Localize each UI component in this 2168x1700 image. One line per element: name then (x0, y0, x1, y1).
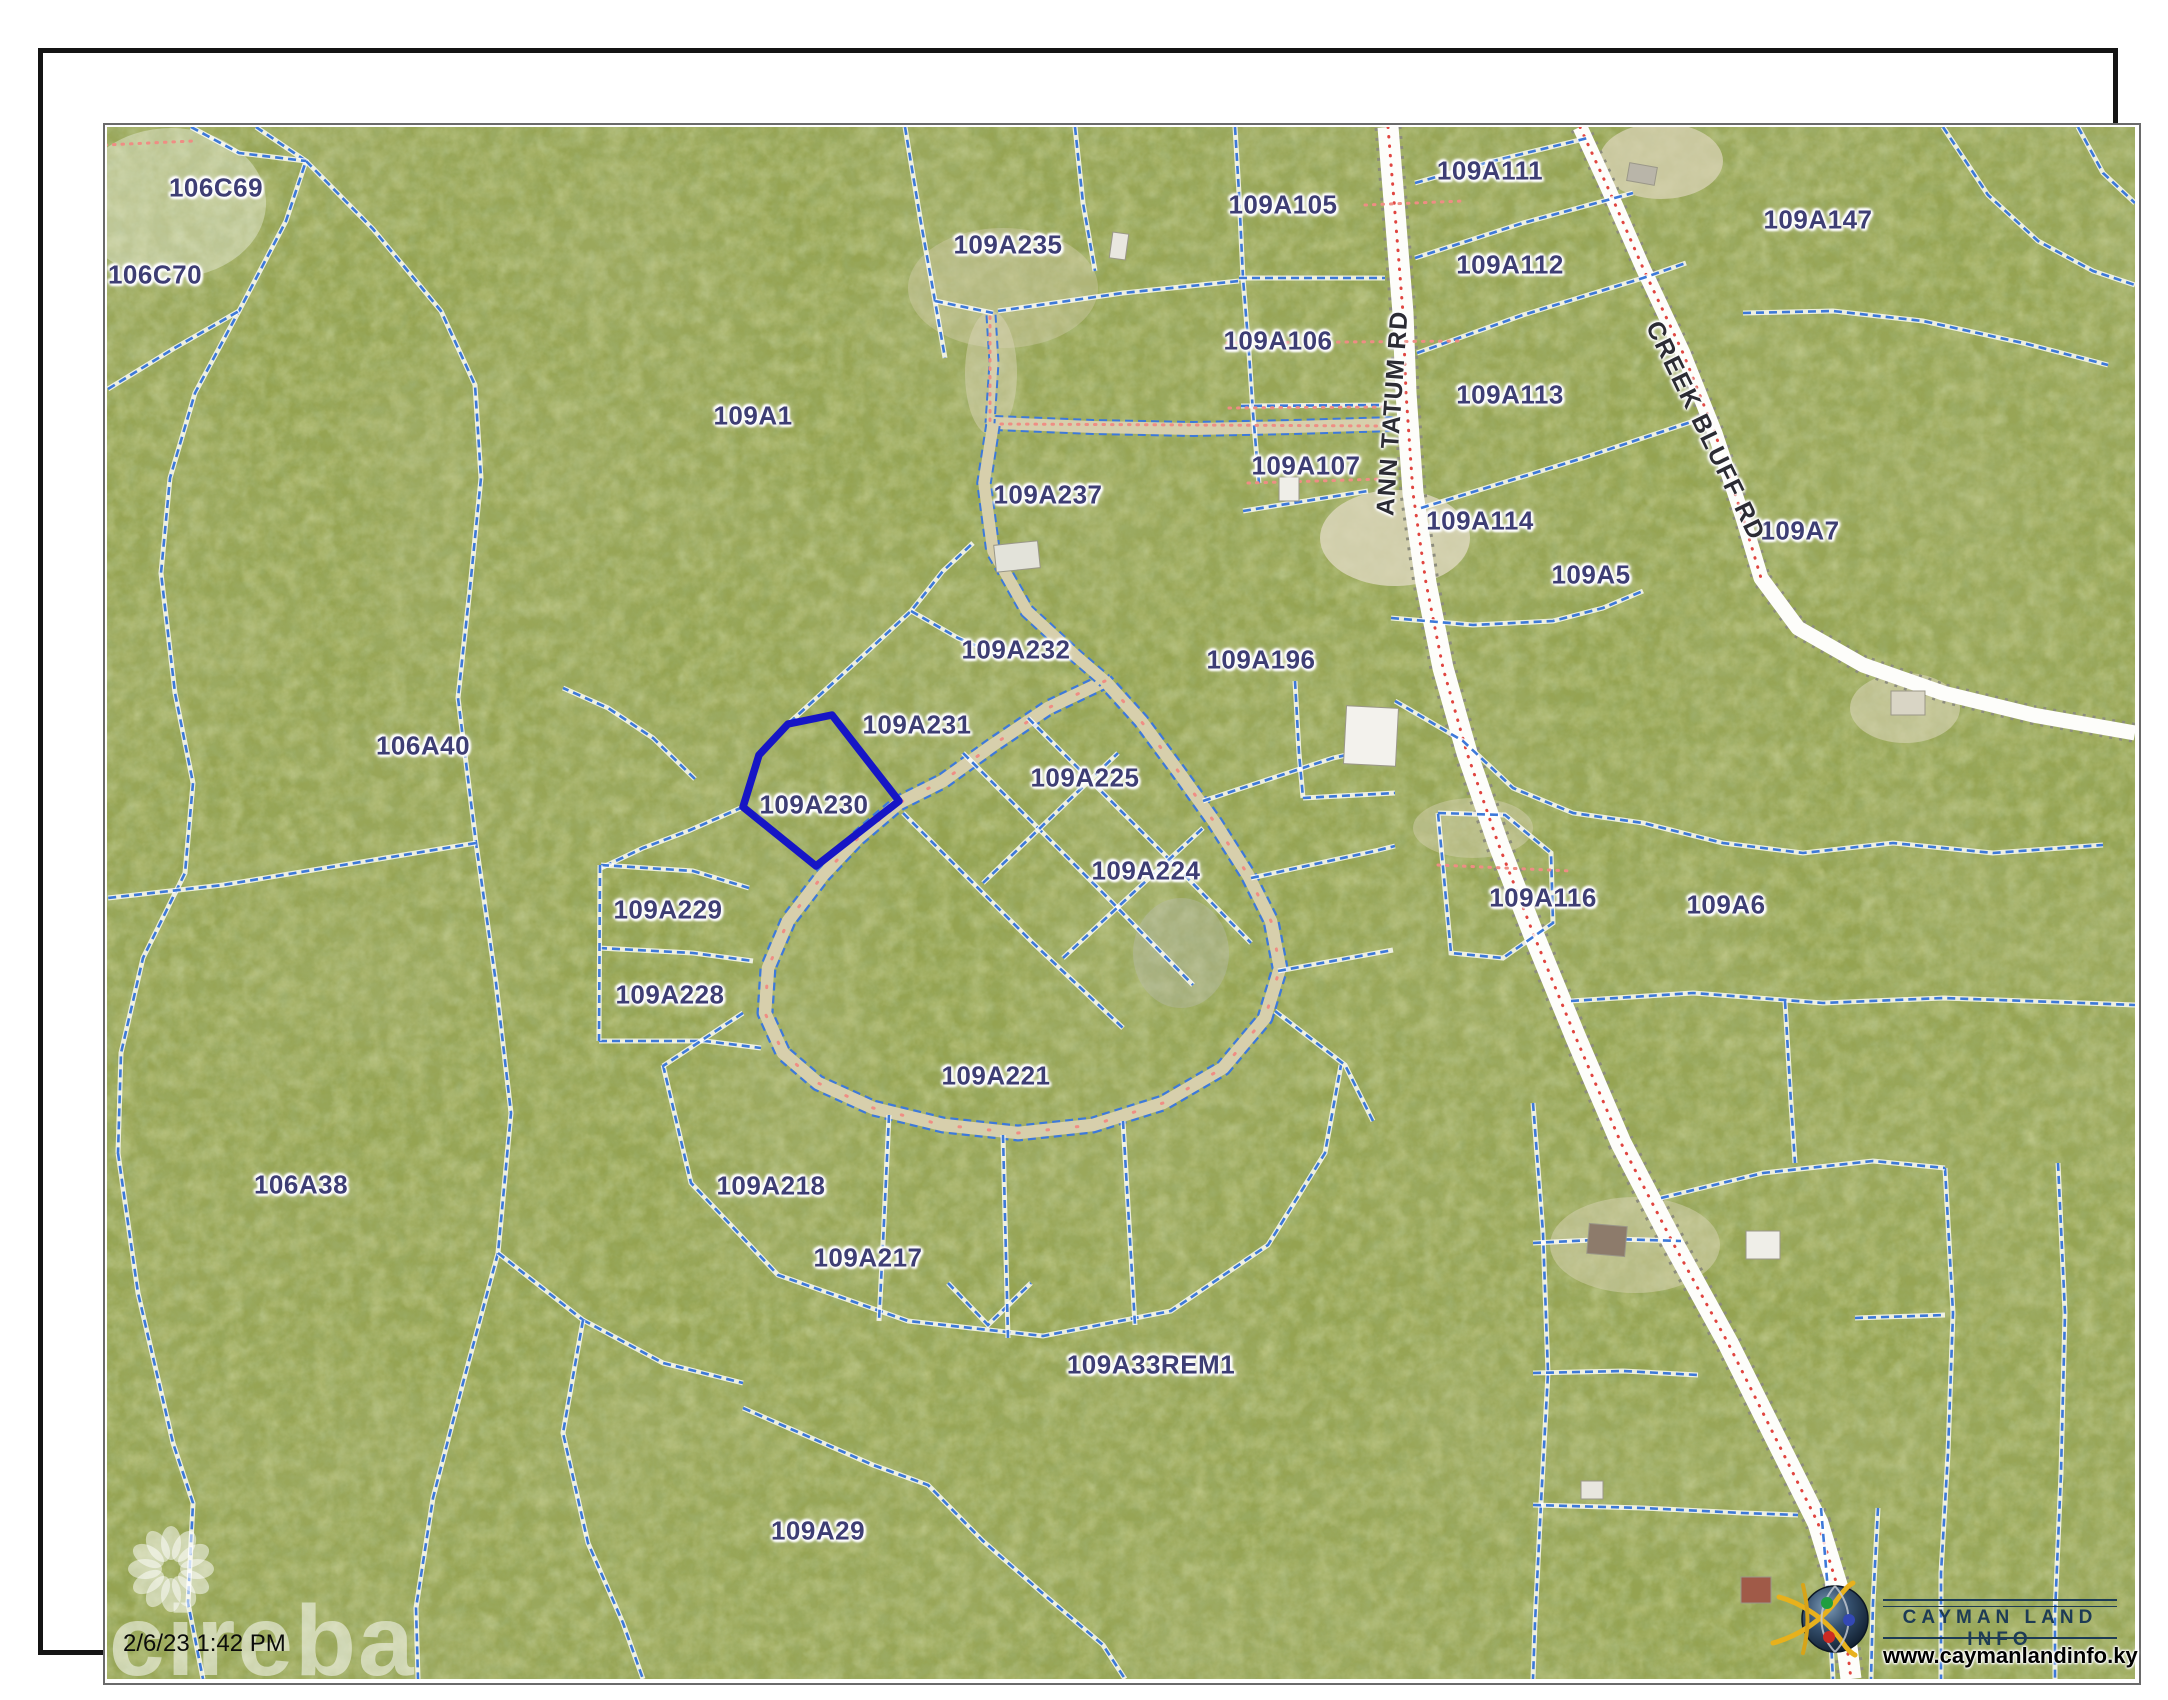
page: 106C69106C70109A1109A235109A105109A10610… (0, 0, 2168, 1700)
building-rooftop (994, 541, 1041, 572)
aerial-parcel-map[interactable]: 106C69106C70109A1109A235109A105109A10610… (107, 127, 2135, 1679)
cayman-land-info-logo: CAYMAN LAND INFO www.caymanlandinfo.ky (1743, 1567, 2143, 1677)
building-rooftop (1109, 232, 1128, 260)
logo-rule-top (1883, 1599, 2117, 1607)
building-rooftop (1581, 1481, 1603, 1499)
terrain-clearing (1413, 798, 1533, 858)
terrain-clearing (1133, 898, 1229, 1008)
building-rooftop (1746, 1231, 1780, 1259)
building-rooftop (1279, 477, 1299, 501)
map-outer-frame: 106C69106C70109A1109A235109A105109A10610… (38, 48, 2118, 1655)
map-timestamp: 2/6/23 1:42 PM (123, 1630, 286, 1658)
logo-url[interactable]: www.caymanlandinfo.ky (1883, 1643, 2117, 1669)
terrain-clearing (1320, 490, 1470, 586)
building-rooftop (1891, 691, 1925, 715)
building-rooftop (1587, 1223, 1627, 1256)
logo-rule-bottom (1883, 1637, 2117, 1639)
map-canvas (107, 127, 2135, 1679)
globe-icon (1743, 1567, 1883, 1677)
building-rooftop (1344, 706, 1399, 767)
